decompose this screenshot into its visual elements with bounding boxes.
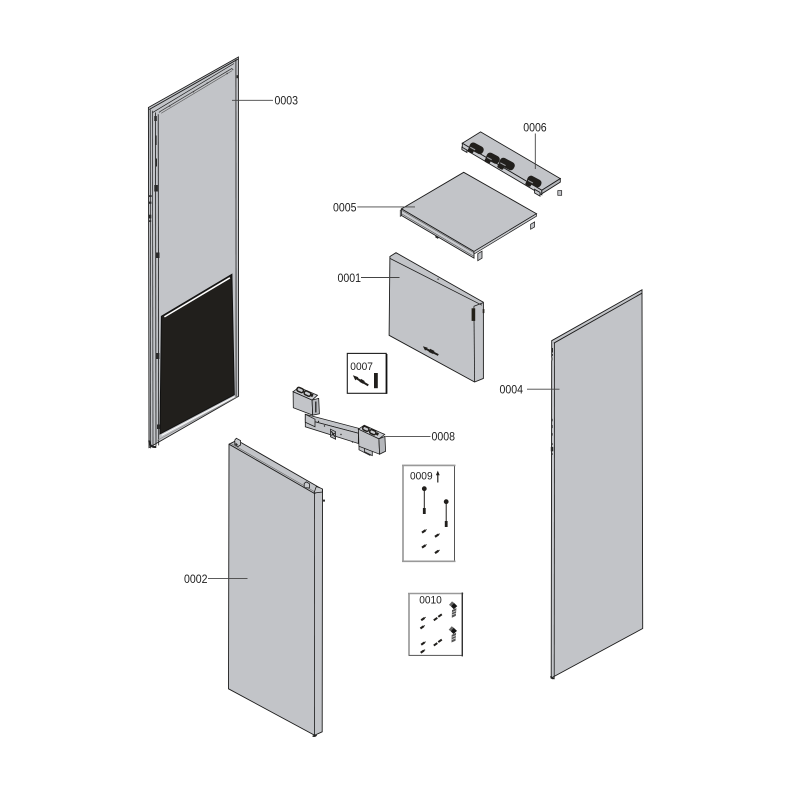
svg-text:0002: 0002 [184,572,208,586]
svg-text:0009: 0009 [410,471,433,483]
svg-text:0006: 0006 [523,120,547,134]
svg-text:0007: 0007 [350,361,373,373]
svg-text:0008: 0008 [432,429,456,443]
svg-text:0004: 0004 [500,383,524,397]
svg-text:0010: 0010 [419,595,442,607]
svg-text:0005: 0005 [333,200,357,214]
svg-text:0003: 0003 [275,94,299,108]
svg-text:0001: 0001 [338,271,362,285]
